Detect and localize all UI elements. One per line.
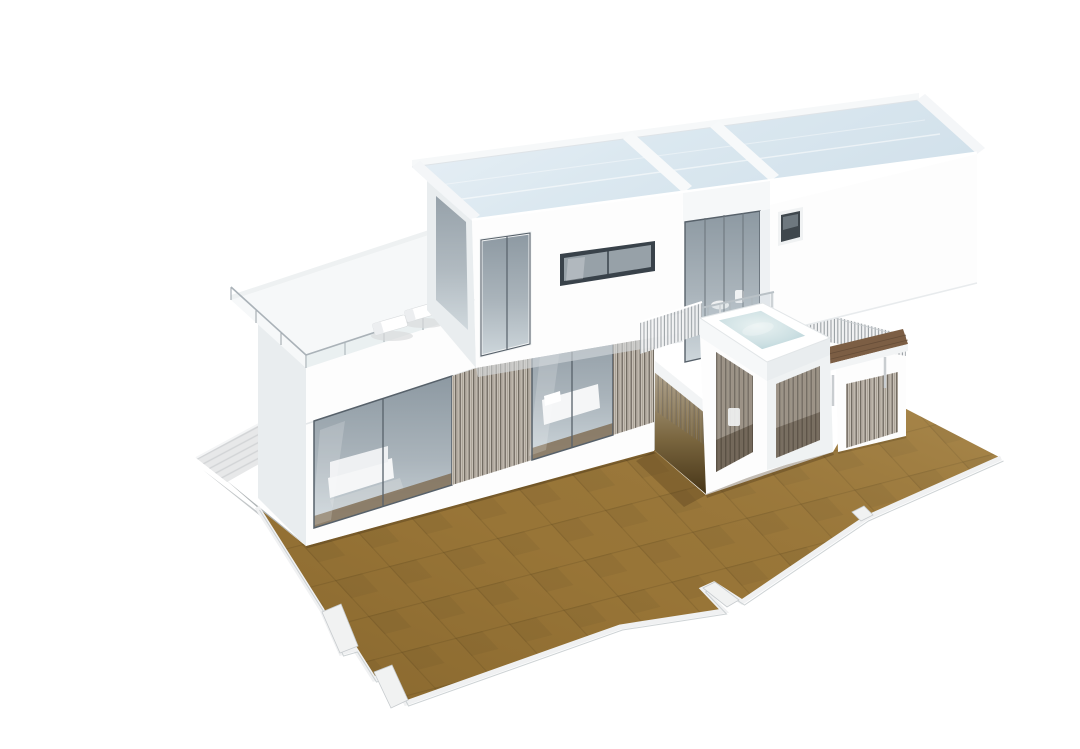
pavilion-interior-chair — [728, 408, 740, 426]
ribbon-window-reflection — [566, 257, 585, 281]
right-volume-front-face — [770, 154, 977, 334]
right-volume — [770, 154, 977, 334]
architectural-render — [0, 0, 1080, 749]
right-lower-module — [836, 352, 906, 452]
corner-window-glass — [481, 233, 530, 356]
house-render-canvas — [0, 0, 1080, 749]
